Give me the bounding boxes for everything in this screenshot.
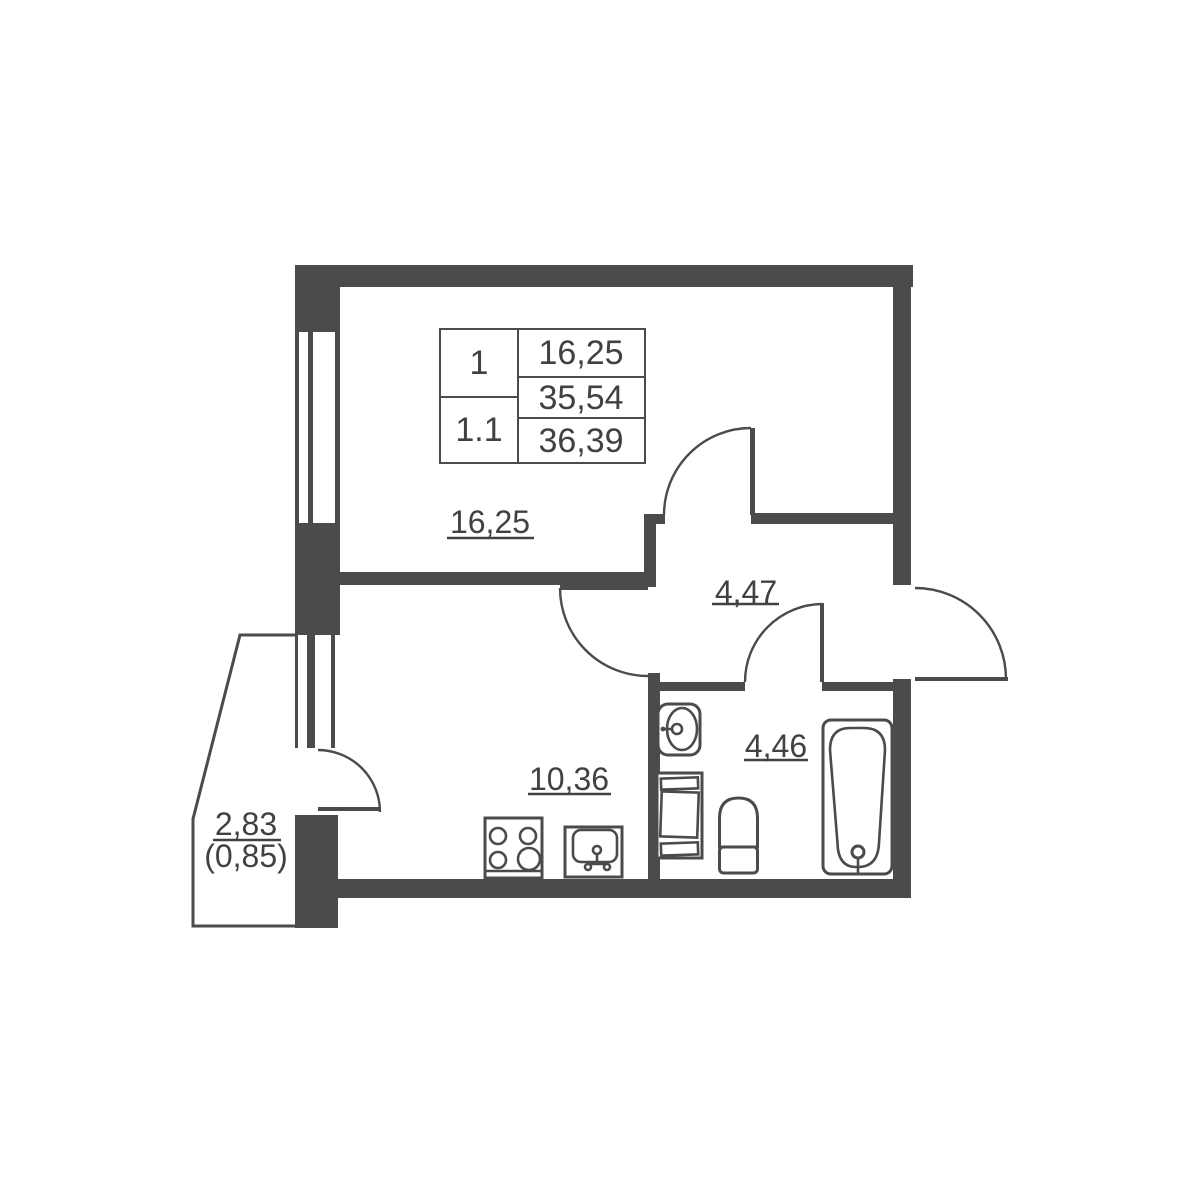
wall-top (295, 265, 913, 287)
legend-table: 1 1.1 16,25 35,54 36,39 (440, 329, 645, 463)
bathtub-icon (823, 720, 892, 874)
wash-basin-icon (658, 704, 700, 755)
washing-machine-icon (657, 773, 702, 858)
kitchen-door (560, 585, 648, 676)
legend-area-total: 36,39 (538, 422, 623, 460)
bathtub-drain (852, 846, 864, 858)
wall-living-bottom (337, 572, 648, 585)
entrance-door (915, 588, 1008, 681)
window-balcony-inner-line (331, 635, 335, 748)
balcony-area-label: 2,83 (215, 806, 277, 842)
wall-door-stub (656, 514, 665, 524)
legend-unit-number: 1 (470, 344, 489, 382)
window-balcony-outer-line (295, 635, 298, 748)
stove-icon (485, 818, 542, 878)
wall-hallway-top (751, 513, 893, 524)
legend-unit-variant: 1.1 (455, 411, 502, 449)
balcony-reduced-area-label: (0,85) (204, 838, 288, 874)
legend-area-living: 16,25 (538, 334, 623, 372)
living-room-door (664, 428, 755, 515)
bathroom-area-label: 4,46 (745, 728, 807, 764)
balcony-door (318, 750, 380, 812)
kitchen-sink-icon (565, 827, 622, 877)
wall-bathroom-top-left (648, 682, 745, 691)
entrance-door-leaf (915, 677, 1008, 681)
living-room-door-arc (664, 428, 751, 515)
legend-area-without-balcony: 35,54 (538, 379, 623, 417)
kitchen-area-label: 10,36 (529, 761, 609, 797)
kitchen-door-arc (560, 588, 648, 676)
living-room-area-label: 16,25 (450, 504, 530, 540)
toilet-icon (720, 798, 758, 873)
basin-tap-dot (661, 727, 666, 732)
wall-bottom (295, 879, 911, 898)
bathroom-door-arc (745, 604, 822, 682)
bathroom-door (745, 603, 824, 682)
floor-plan-drawing: 1 1.1 16,25 35,54 36,39 (0, 0, 1200, 1200)
living-room-door-leaf (750, 428, 755, 515)
window-living-mid-line (308, 332, 313, 523)
wall-left-block (295, 815, 338, 928)
window-balcony-mid-line (307, 635, 315, 748)
kitchen-door-leaf (560, 585, 648, 590)
balcony-door-arc (318, 750, 380, 812)
floor-plan-page: 1 1.1 16,25 35,54 36,39 (0, 0, 1200, 1200)
wall-door-jamb (644, 514, 656, 587)
bathroom-door-leaf (820, 603, 824, 682)
balcony-outline (193, 635, 297, 926)
wall-left-mid (295, 523, 340, 635)
window-living-outer-line (295, 332, 299, 523)
balcony-door-leaf (318, 807, 380, 811)
wall-left-top (295, 265, 340, 332)
wall-right-lower (893, 679, 911, 898)
wall-right-upper (893, 265, 911, 585)
window-living-inner-line (335, 332, 340, 523)
wall-bathroom-top-right (822, 682, 893, 691)
entrance-door-arc (915, 588, 1006, 679)
